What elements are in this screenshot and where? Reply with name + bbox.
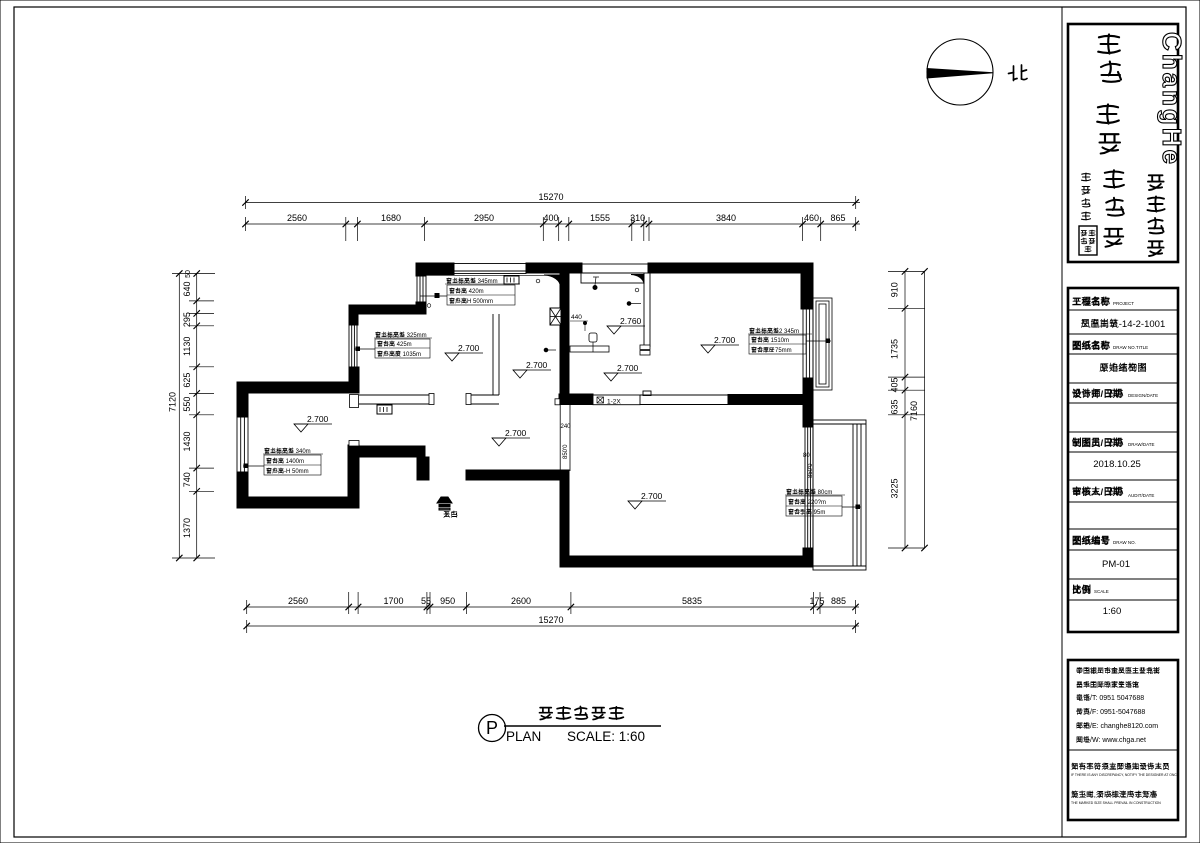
svg-text:2.700: 2.700 <box>458 343 480 353</box>
svg-text:910: 910 <box>890 282 900 297</box>
svg-text:405: 405 <box>890 377 900 392</box>
svg-text:15270: 15270 <box>538 192 563 202</box>
svg-text:310: 310 <box>630 213 645 223</box>
svg-text:窗台高 1510m: 窗台高 1510m <box>751 336 789 344</box>
svg-text:1735: 1735 <box>890 339 900 359</box>
svg-text:550: 550 <box>182 397 192 412</box>
svg-text:15270: 15270 <box>538 615 563 625</box>
svg-text:950: 950 <box>440 596 455 606</box>
svg-text:295: 295 <box>182 312 192 327</box>
svg-text:SCALE: 1:60: SCALE: 1:60 <box>567 729 645 744</box>
svg-text:窗台高 220?m: 窗台高 220?m <box>788 498 826 506</box>
svg-text:1680: 1680 <box>381 213 401 223</box>
svg-text:窗合引高 95m: 窗合引高 95m <box>788 508 825 516</box>
svg-text:400: 400 <box>543 213 558 223</box>
svg-text:PM-01: PM-01 <box>1102 559 1130 570</box>
svg-text:3225: 3225 <box>890 478 900 498</box>
svg-text:2.700: 2.700 <box>526 360 548 370</box>
svg-text:DESIGN/DATE: DESIGN/DATE <box>1128 393 1158 398</box>
svg-text:2600: 2600 <box>511 596 531 606</box>
svg-text:窗台高 420m: 窗台高 420m <box>449 287 484 295</box>
svg-text:IF THERE IS ANY DISCREPANCY, N: IF THERE IS ANY DISCREPANCY, NOTIFY THE … <box>1071 773 1180 777</box>
svg-text:窗户高H 500mm: 窗户高H 500mm <box>449 297 493 305</box>
svg-text:1-2X: 1-2X <box>607 399 621 406</box>
svg-text:窗户高度 1035m: 窗户高度 1035m <box>377 350 421 358</box>
svg-text:740: 740 <box>182 472 192 487</box>
svg-text:窗台高 425m: 窗台高 425m <box>377 340 412 348</box>
svg-text:DRAW NO.TITLE: DRAW NO.TITLE <box>1113 345 1148 350</box>
svg-text:AUDIT/DATE: AUDIT/DATE <box>1128 493 1154 498</box>
svg-text:DRAW/DATE: DRAW/DATE <box>1128 442 1155 447</box>
svg-text:2950: 2950 <box>474 213 494 223</box>
svg-text:80: 80 <box>803 453 810 459</box>
svg-text:440: 440 <box>571 314 582 321</box>
svg-text:2560: 2560 <box>288 596 308 606</box>
svg-text:1130: 1130 <box>182 337 192 356</box>
svg-text:2018.10.25: 2018.10.25 <box>1093 459 1141 470</box>
svg-text:1555: 1555 <box>590 213 610 223</box>
svg-text:2.700: 2.700 <box>617 363 639 373</box>
svg-text:1:60: 1:60 <box>1103 606 1122 617</box>
svg-text:2.700: 2.700 <box>505 428 527 438</box>
svg-text:460: 460 <box>804 213 819 223</box>
svg-text:2.700: 2.700 <box>641 491 663 501</box>
svg-text:1700: 1700 <box>383 596 403 606</box>
svg-text:1430: 1430 <box>182 431 192 451</box>
svg-text:窗台高 1400m: 窗台高 1400m <box>266 457 304 465</box>
svg-text:850'0: 850'0 <box>808 463 814 478</box>
svg-text:55: 55 <box>421 596 431 606</box>
svg-text:50: 50 <box>185 270 192 278</box>
svg-text:窗合厚H 75mm: 窗合厚H 75mm <box>751 346 792 354</box>
svg-text:PROJECT: PROJECT <box>1113 301 1134 306</box>
svg-text:640: 640 <box>182 281 192 296</box>
svg-text:P: P <box>486 718 498 738</box>
svg-text:5835: 5835 <box>682 596 702 606</box>
svg-text:PLAN: PLAN <box>506 729 541 744</box>
svg-text:865: 865 <box>830 213 845 223</box>
svg-text:7160: 7160 <box>909 401 919 421</box>
svg-text:THE MARKED SIZE SHALL PREVAIL: THE MARKED SIZE SHALL PREVAIL IN CONSTRU… <box>1071 801 1161 805</box>
svg-text:885: 885 <box>831 596 846 606</box>
svg-text:1370: 1370 <box>182 518 192 538</box>
svg-text:635: 635 <box>890 399 900 414</box>
svg-text:240: 240 <box>561 424 572 430</box>
svg-text:3840: 3840 <box>716 213 736 223</box>
svg-text:2.760: 2.760 <box>620 316 642 326</box>
svg-text:DRAW NO.: DRAW NO. <box>1113 540 1136 545</box>
svg-text:2.700: 2.700 <box>307 414 329 424</box>
svg-text:2560: 2560 <box>287 213 307 223</box>
svg-text:625: 625 <box>182 373 192 388</box>
svg-text:175: 175 <box>809 596 824 606</box>
svg-text:2.700: 2.700 <box>714 335 736 345</box>
svg-text:SCALE: SCALE <box>1094 589 1109 594</box>
svg-text:7120: 7120 <box>168 392 178 412</box>
svg-text:窗户高-H 50mm: 窗户高-H 50mm <box>266 467 309 475</box>
svg-text:850'0: 850'0 <box>563 444 569 459</box>
